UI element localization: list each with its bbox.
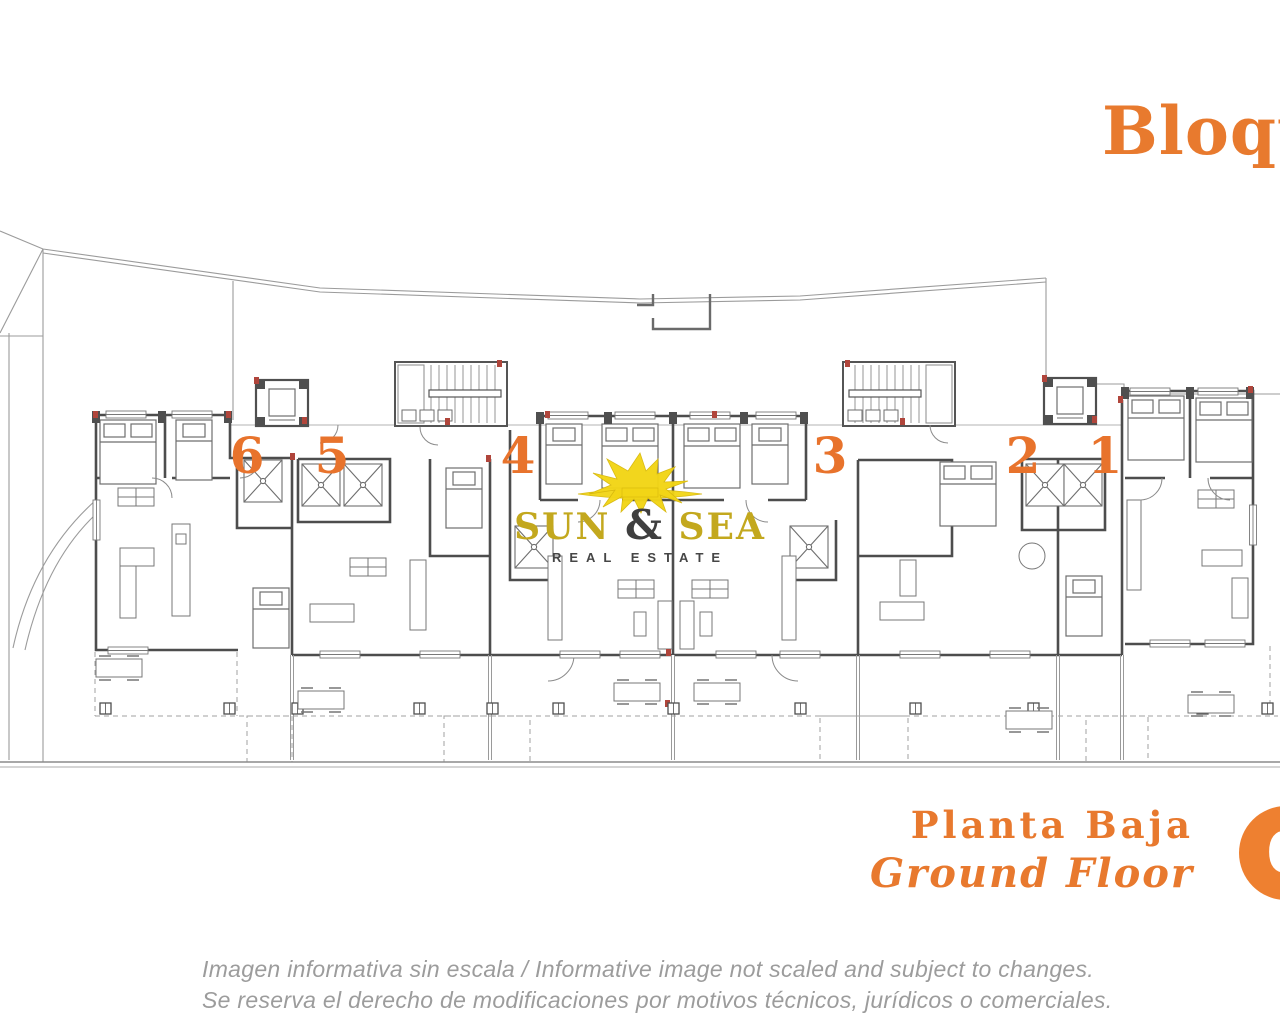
- floor-number: 0: [1267, 820, 1280, 886]
- disclaimer: Imagen informativa sin escala / Informat…: [202, 954, 1112, 1015]
- staircase-left: [395, 362, 507, 426]
- floor-label-english: Ground Floor: [870, 851, 1194, 897]
- brand-subtitle: REAL ESTATE: [490, 550, 790, 565]
- brand-name: SUN & SEA: [490, 504, 790, 547]
- terrace-columns: [100, 703, 1273, 714]
- unit-label-6: 6: [230, 426, 265, 485]
- elevator-left: [256, 380, 308, 426]
- brand-ampersand: &: [625, 501, 664, 549]
- floor-label: Planta Baja Ground Floor: [870, 804, 1194, 897]
- disclaimer-line-2: Se reserva el derecho de modificaciones …: [202, 985, 1112, 1016]
- page: 6 5 4 3 2 1 Bloque SUN & SEA REAL ESTATE…: [0, 0, 1280, 1024]
- unit-label-5: 5: [315, 426, 350, 485]
- terrace-tables: [96, 656, 1234, 732]
- disclaimer-line-1: Imagen informativa sin escala / Informat…: [202, 954, 1112, 985]
- brand-logo: SUN & SEA REAL ESTATE: [490, 452, 790, 565]
- elevator-right: [1044, 378, 1096, 424]
- unit-label-1: 1: [1088, 426, 1123, 485]
- block-title: Bloque: [1102, 98, 1280, 164]
- bottom-site-lines: [0, 762, 1280, 767]
- brand-word-sea: SEA: [679, 506, 766, 548]
- unit-label-2: 2: [1006, 426, 1041, 485]
- staircase-right: [843, 362, 955, 426]
- floor-label-spanish: Planta Baja: [870, 804, 1194, 847]
- unit-label-3: 3: [813, 426, 848, 485]
- terrace-dashed-lines: [95, 646, 1278, 762]
- brand-word-sun: SUN: [514, 506, 610, 548]
